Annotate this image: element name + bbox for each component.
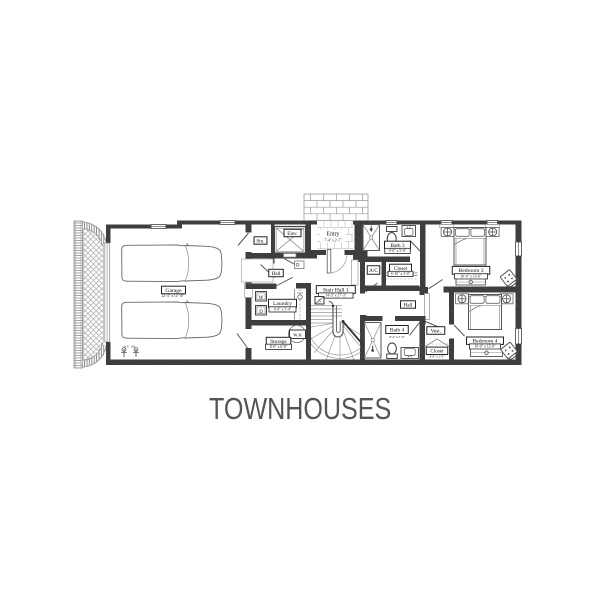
svg-text:W: W	[259, 296, 264, 301]
svg-text:10'-0" x 12'-0": 10'-0" x 12'-0"	[475, 345, 497, 349]
svg-text:6'-8" x 2'-8": 6'-8" x 2'-8"	[430, 355, 445, 359]
svg-text:Hall: Hall	[404, 302, 413, 308]
svg-text:Entry: Entry	[327, 232, 340, 238]
svg-text:Laundry: Laundry	[273, 301, 292, 307]
svg-text:Elev.: Elev.	[287, 231, 297, 237]
svg-text:W.H: W.H	[293, 332, 302, 337]
svg-text:9'-0" x 5'-0": 9'-0" x 5'-0"	[389, 249, 407, 253]
svg-text:8'-0" x 6'-8": 8'-0" x 6'-8"	[270, 345, 288, 349]
svg-text:A/C: A/C	[369, 268, 378, 274]
svg-text:Closet: Closet	[394, 266, 408, 272]
svg-text:D: D	[259, 310, 263, 315]
svg-text:14'-3" x 17'-3": 14'-3" x 17'-3"	[325, 294, 347, 298]
svg-text:H.B. H.B.: H.B. H.B.	[124, 346, 136, 349]
svg-text:Vest.: Vest.	[431, 328, 441, 334]
svg-text:Sto.: Sto.	[256, 238, 264, 244]
svg-text:7'-4" x 2'-7": 7'-4" x 2'-7"	[324, 239, 342, 243]
svg-text:10'-0" x 13'-6": 10'-0" x 13'-6"	[461, 275, 483, 279]
svg-text:Hall: Hall	[272, 271, 281, 277]
svg-text:6'-8" x 5'-4": 6'-8" x 5'-4"	[274, 308, 292, 312]
svg-text:8'-4" x 5'-0": 8'-4" x 5'-0"	[389, 335, 405, 339]
svg-text:6'-10" x 3'-0": 6'-10" x 3'-0"	[391, 272, 411, 276]
svg-text:22'-4" x 12'-10": 22'-4" x 12'-10"	[162, 294, 185, 298]
svg-text:Bath 4: Bath 4	[390, 327, 405, 333]
